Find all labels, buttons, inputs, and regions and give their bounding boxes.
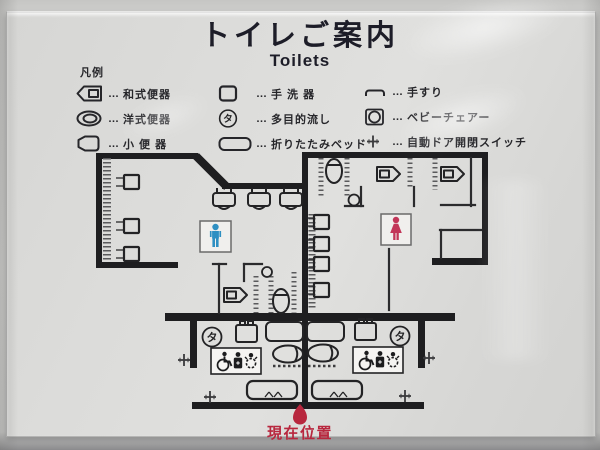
- mens-room-sign: [200, 221, 231, 252]
- accessibility-sign: [353, 347, 403, 373]
- urinal: [280, 188, 302, 209]
- hand-wash-basin: [116, 175, 139, 189]
- accessibility-sign: [211, 348, 261, 374]
- auto-door-switch: [399, 390, 411, 402]
- western-toilet: [326, 159, 342, 183]
- hand-wash-basin: [116, 247, 139, 261]
- current-location-label: 現在位置: [267, 424, 333, 442]
- hand-wash-basin: [236, 321, 257, 342]
- western-toilet: [273, 289, 289, 313]
- squat-toilet: [224, 288, 247, 302]
- walls-thick: [96, 152, 488, 409]
- squat-toilet: [441, 167, 464, 181]
- hand-wash-basin: [355, 319, 376, 340]
- urinal: [248, 188, 270, 209]
- hand-wash-basin: [116, 219, 139, 233]
- multipurpose-sink: [203, 328, 222, 347]
- folding-bed: [266, 322, 303, 341]
- womens-room-sign: [381, 214, 411, 245]
- western-toilet: [273, 346, 303, 363]
- folding-bed: [307, 322, 344, 341]
- auto-door-switch: [178, 354, 190, 366]
- floor-plan: タ: [0, 0, 600, 450]
- current-location-marker: 現在位置: [267, 404, 333, 442]
- western-toilet: [308, 345, 338, 362]
- folding-bed: [312, 381, 362, 399]
- urinal: [213, 188, 235, 209]
- baby-chair: [262, 267, 272, 277]
- squat-toilet: [377, 167, 400, 181]
- wall-diagonal: [196, 156, 227, 187]
- baby-chair: [349, 195, 360, 206]
- auto-door-switch: [204, 391, 216, 403]
- folding-bed: [247, 381, 297, 399]
- multipurpose-sink: [391, 327, 410, 346]
